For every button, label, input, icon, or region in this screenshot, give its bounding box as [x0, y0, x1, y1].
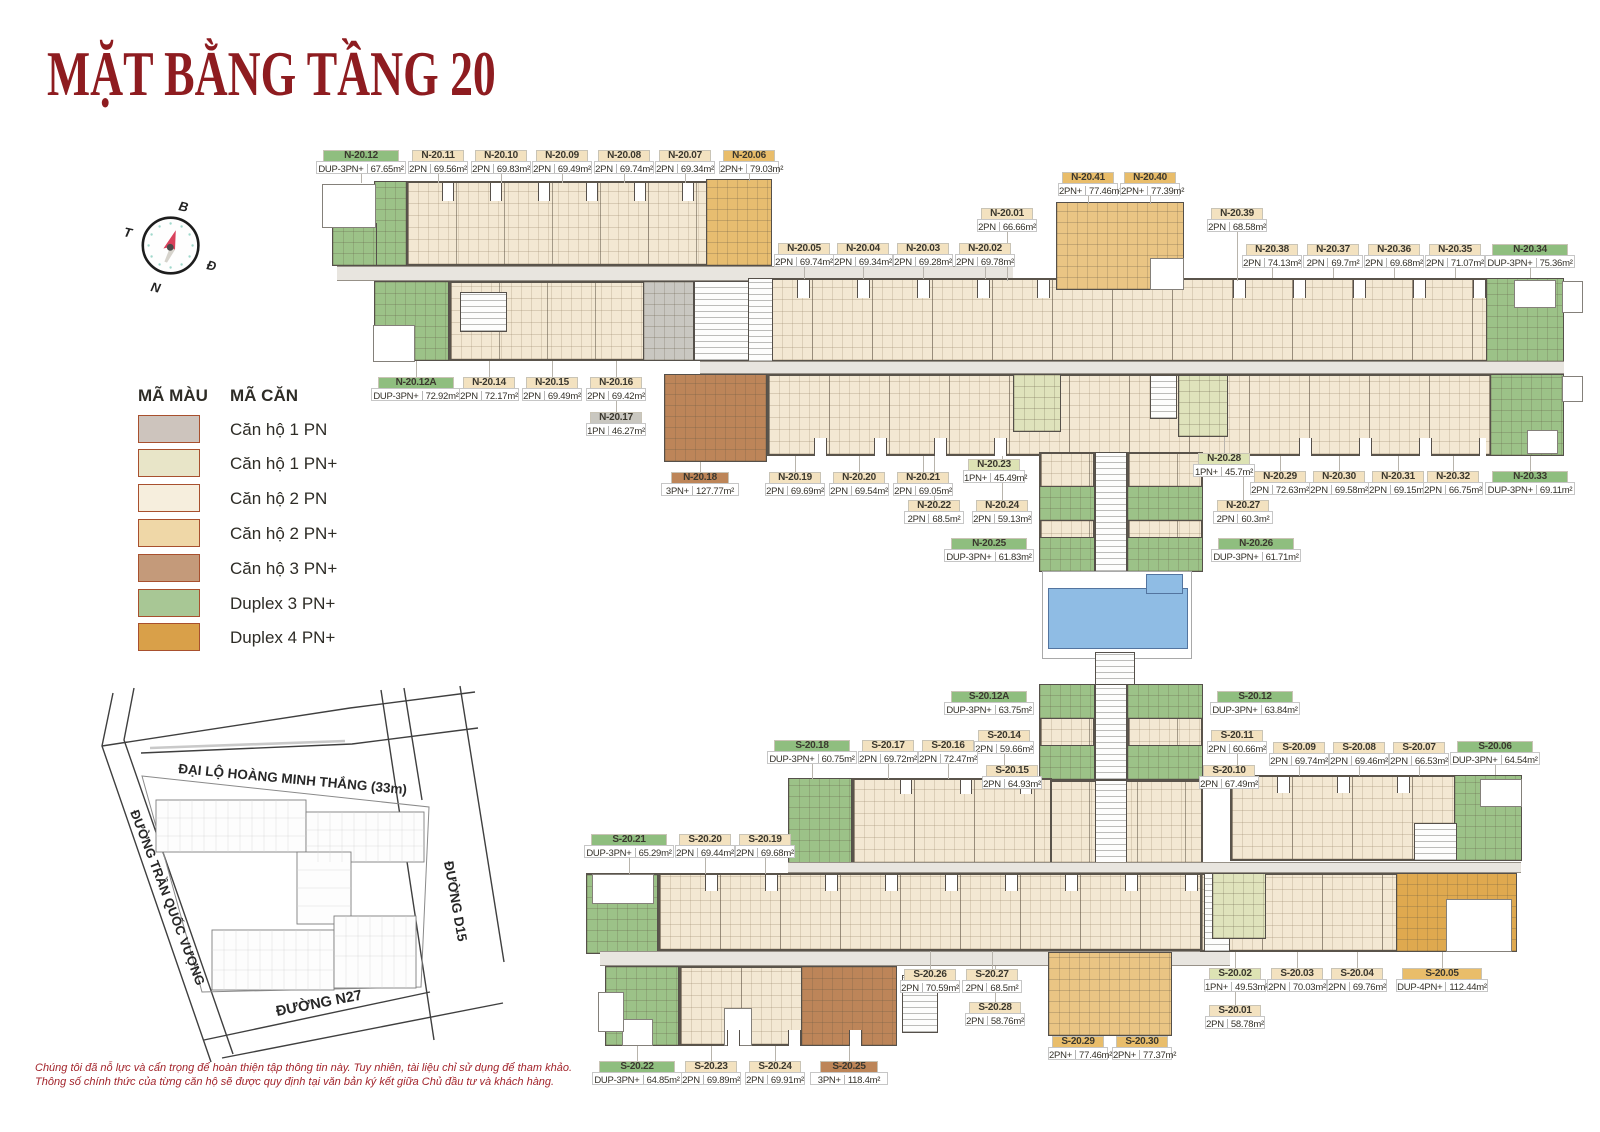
svg-text:T: T — [122, 224, 134, 241]
svg-text:ĐƯỜNG N27: ĐƯỜNG N27 — [274, 986, 363, 1020]
svg-text:ĐƯỜNG D15: ĐƯỜNG D15 — [441, 860, 470, 943]
svg-text:Đ: Đ — [205, 257, 218, 274]
svg-text:B: B — [177, 198, 189, 215]
svg-text:N: N — [149, 279, 162, 296]
svg-text:ĐẠI LỘ HOÀNG MINH THẮNG (33m): ĐẠI LỘ HOÀNG MINH THẮNG (33m) — [178, 761, 408, 797]
